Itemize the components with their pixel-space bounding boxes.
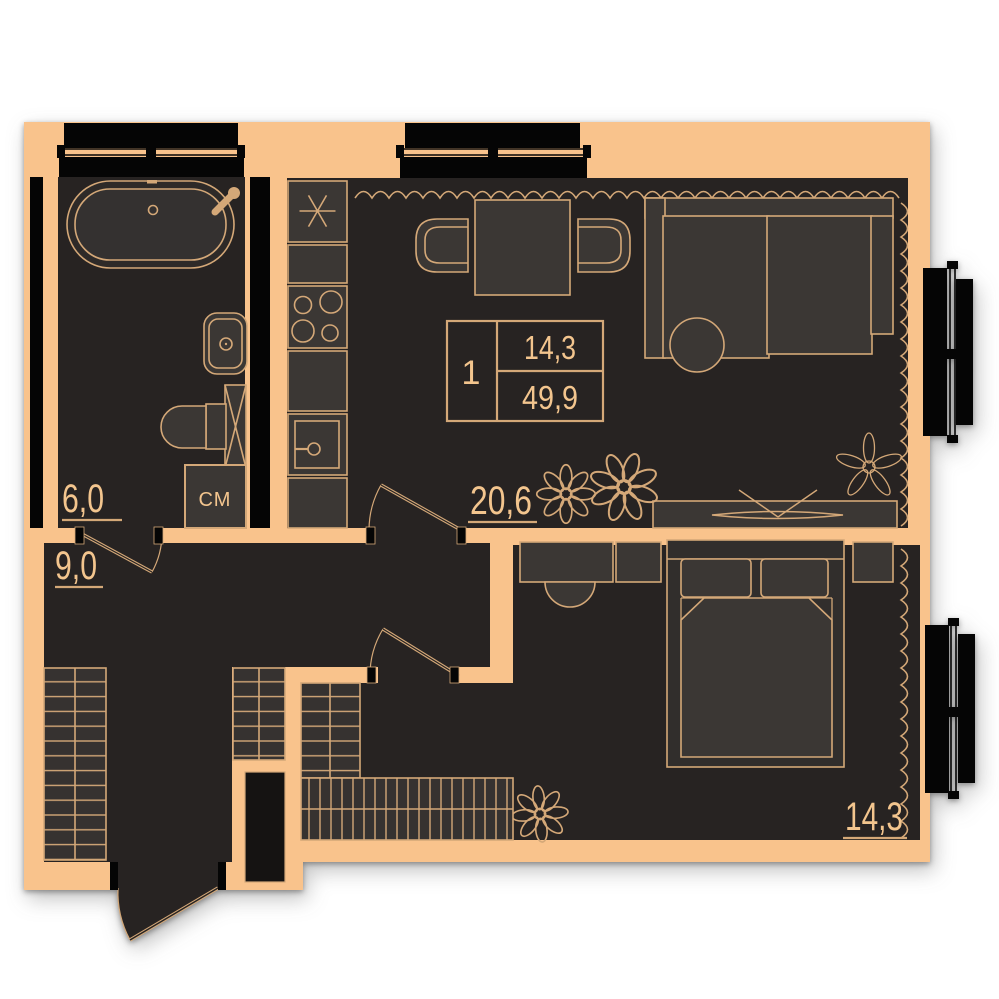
living-area-label: 20,6 <box>470 479 532 523</box>
shaft <box>245 772 285 882</box>
stove <box>288 286 347 348</box>
desk <box>520 542 613 582</box>
pillow <box>761 559 828 597</box>
rooms-count: 1 <box>462 354 481 392</box>
duct-box <box>225 385 246 468</box>
floor-plan-svg: 1 14,3 49,9 6,0 9,0 20,6 14,3 СМ <box>0 0 999 999</box>
bathtub <box>67 180 240 268</box>
bedroom-side-window <box>925 618 975 799</box>
kitchen-cabinet <box>288 478 347 528</box>
dining-chair-left <box>416 219 468 272</box>
desk-cabinet <box>616 542 661 582</box>
hallway-area-label: 9,0 <box>55 544 97 588</box>
closet-hall-mid <box>233 668 285 760</box>
bathroom-area-label: 6,0 <box>62 477 104 521</box>
bed <box>667 540 844 767</box>
sofa-chaise <box>767 216 872 354</box>
toilet <box>161 404 226 449</box>
dining-chair-right <box>578 219 630 272</box>
closet-dressing <box>301 683 360 778</box>
entrance-opening <box>118 862 218 890</box>
living-area-value: 14,3 <box>524 329 576 366</box>
kitchen-cabinet <box>288 351 347 411</box>
living-side-window <box>923 261 973 443</box>
washing-machine-label: СМ <box>199 489 232 511</box>
bathroom-sink <box>204 313 247 374</box>
pillow <box>681 559 751 597</box>
entrance-door <box>118 888 218 940</box>
kitchen-cabinet <box>288 245 347 283</box>
bedroom-area-label: 14,3 <box>845 795 903 839</box>
blanket <box>681 598 832 757</box>
wardrobe-long <box>301 778 513 840</box>
floor-plan-page: 1 14,3 49,9 6,0 9,0 20,6 14,3 СМ <box>0 0 999 999</box>
floor-plan: 1 14,3 49,9 6,0 9,0 20,6 14,3 СМ <box>0 0 999 999</box>
living-door-opening <box>369 528 462 545</box>
total-area-value: 49,9 <box>522 379 578 416</box>
hallway-floor-upper <box>44 543 490 667</box>
coffee-table <box>670 318 724 372</box>
closet-hall-left <box>44 668 106 860</box>
dining-table <box>475 200 570 295</box>
nightstand <box>853 542 893 582</box>
